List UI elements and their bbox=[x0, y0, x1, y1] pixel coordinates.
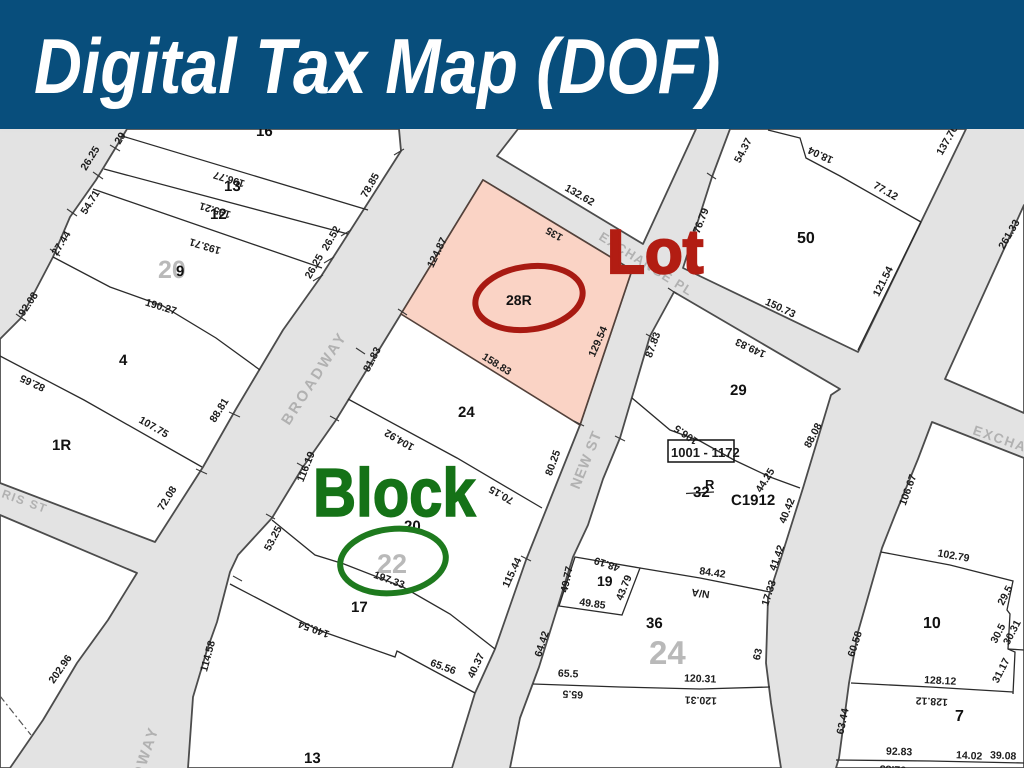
svg-text:39.08: 39.08 bbox=[990, 749, 1017, 762]
svg-text:14.02: 14.02 bbox=[956, 749, 983, 762]
svg-text:10: 10 bbox=[923, 615, 941, 632]
svg-text:1001 - 1172: 1001 - 1172 bbox=[671, 445, 740, 460]
svg-text:17: 17 bbox=[351, 599, 368, 616]
svg-text:50: 50 bbox=[797, 230, 815, 247]
svg-text:120.31: 120.31 bbox=[684, 693, 717, 706]
svg-text:65.5: 65.5 bbox=[562, 687, 583, 700]
svg-text:28R: 28R bbox=[506, 292, 532, 308]
svg-text:N/A: N/A bbox=[690, 586, 710, 600]
svg-text:128.12: 128.12 bbox=[924, 674, 957, 688]
svg-text:92.83: 92.83 bbox=[886, 746, 913, 759]
svg-text:29: 29 bbox=[730, 382, 747, 399]
svg-text:1R: 1R bbox=[52, 437, 71, 454]
svg-text:36: 36 bbox=[646, 615, 663, 632]
svg-text:65.5: 65.5 bbox=[558, 667, 579, 680]
svg-text:Block: Block bbox=[313, 455, 476, 531]
svg-text:7: 7 bbox=[955, 708, 964, 725]
svg-text:9: 9 bbox=[176, 263, 184, 280]
svg-text:24: 24 bbox=[458, 404, 475, 421]
svg-text:Lot: Lot bbox=[607, 218, 703, 287]
svg-text:C1912: C1912 bbox=[731, 492, 775, 509]
svg-text:R: R bbox=[705, 477, 715, 492]
svg-text:19: 19 bbox=[597, 573, 613, 589]
svg-text:16: 16 bbox=[256, 129, 273, 140]
svg-text:120.31: 120.31 bbox=[684, 672, 717, 685]
svg-text:13: 13 bbox=[304, 750, 321, 767]
svg-text:24: 24 bbox=[649, 634, 686, 671]
svg-text:4: 4 bbox=[119, 352, 128, 369]
svg-text:128.12: 128.12 bbox=[915, 694, 948, 708]
